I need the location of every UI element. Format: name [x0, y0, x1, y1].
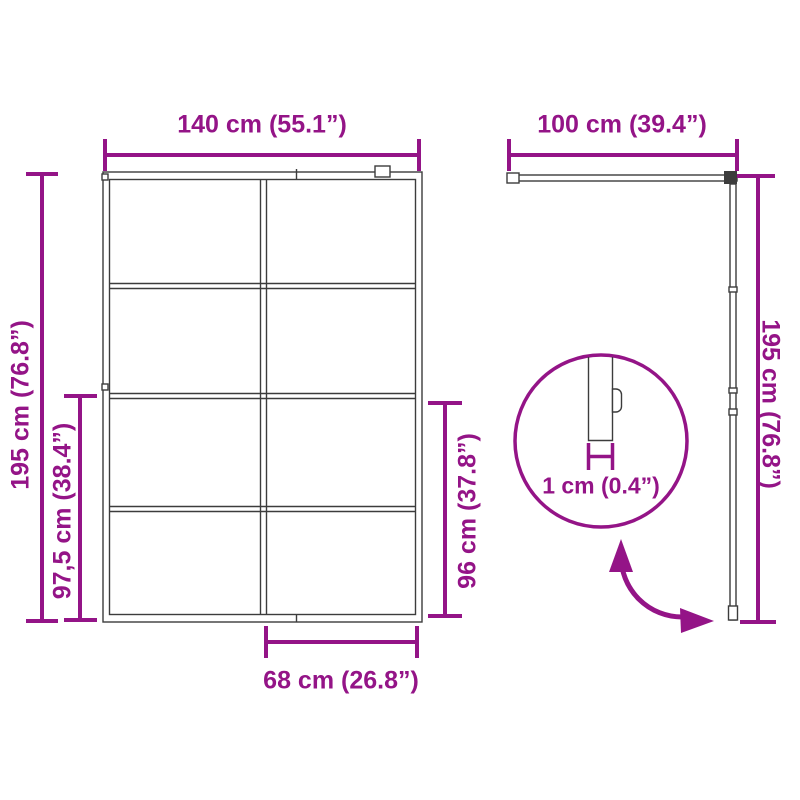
side-view-track-rail [508, 175, 737, 181]
label-handle-height: 96 cm (37.8”) [456, 433, 481, 589]
detail-handle-profile [613, 389, 622, 412]
label-thickness: 1 cm (0.4”) [542, 475, 660, 498]
zoom-arrow-head-right [680, 608, 714, 633]
side-view-handle-bottom [729, 409, 737, 415]
label-front-width: 140 cm (55.1”) [177, 113, 347, 138]
front-view-wall-bracket-mid [102, 384, 108, 390]
zoom-arrow [609, 539, 714, 633]
front-view-outer-frame [103, 172, 422, 622]
side-view-floor-guide [729, 606, 738, 620]
label-lower-section-height: 97,5 cm (38.4”) [51, 423, 76, 600]
side-view-connector-mark [729, 287, 737, 292]
label-panel-width: 68 cm (26.8”) [263, 669, 419, 694]
front-view-roller-bracket [375, 166, 390, 177]
dimension-front-width [105, 139, 419, 171]
zoom-arrow-head-up [609, 539, 633, 572]
side-view-track-end-cap [507, 173, 519, 183]
side-view-hanger-bracket [724, 171, 737, 184]
label-track-width: 100 cm (39.4”) [537, 113, 707, 138]
front-view [102, 166, 422, 622]
dimension-diagram: 140 cm (55.1”) 100 cm (39.4”) 195 cm (76… [0, 0, 800, 800]
label-side-height: 195 cm (76.8”) [758, 319, 783, 489]
thickness-detail [515, 355, 687, 527]
front-view-wall-bracket-top [102, 174, 108, 180]
side-view-handle-top [729, 388, 737, 393]
dimension-panel-width [266, 626, 417, 658]
dimension-thickness [589, 443, 613, 470]
dimension-track-width [509, 139, 737, 171]
label-front-height: 195 cm (76.8”) [9, 320, 34, 490]
detail-glass-edge-profile [589, 357, 613, 441]
side-view-door-panel [730, 184, 736, 620]
